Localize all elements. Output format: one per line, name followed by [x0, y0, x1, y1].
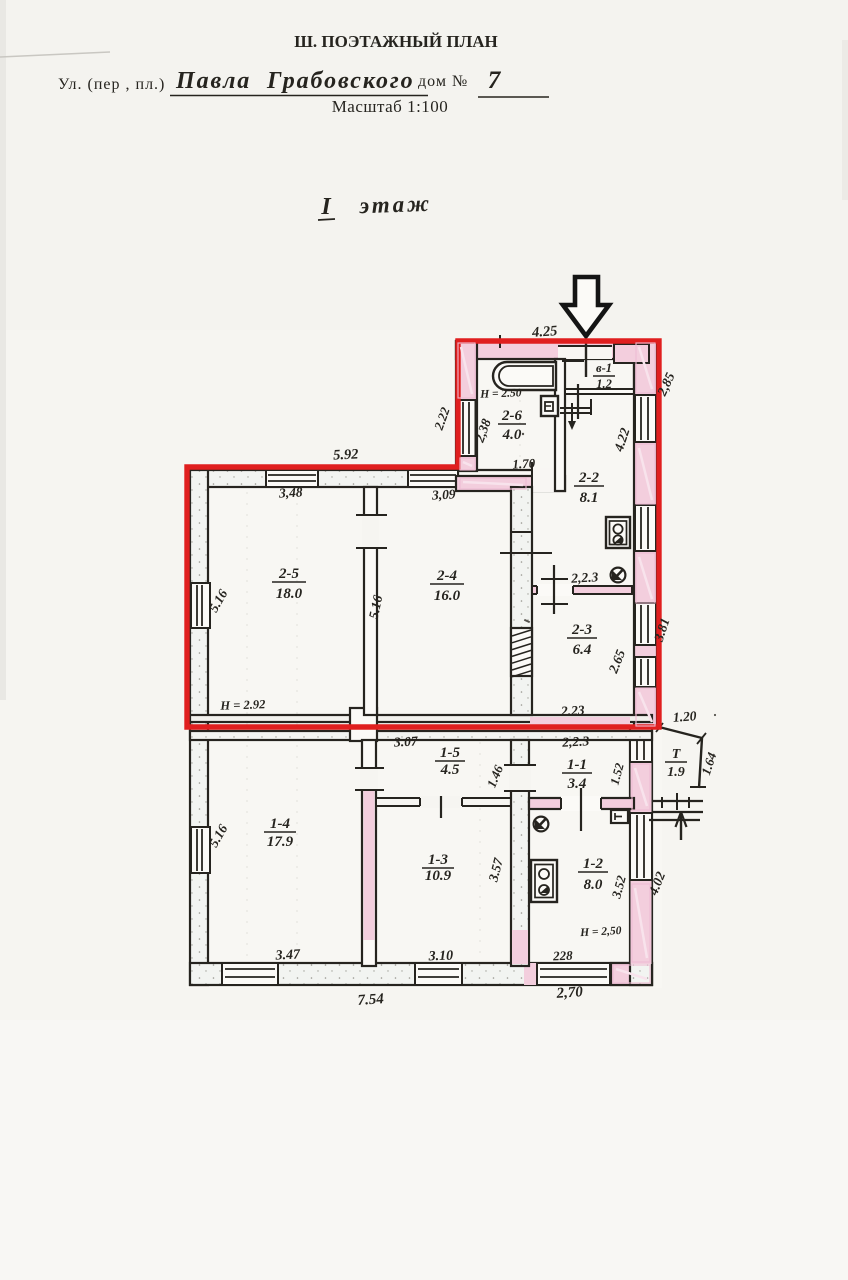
- svg-text:16.0: 16.0: [434, 588, 461, 604]
- svg-text:2-6: 2-6: [501, 408, 522, 424]
- svg-text:228: 228: [552, 948, 574, 964]
- svg-text:10.9: 10.9: [425, 868, 452, 884]
- svg-text:17.9: 17.9: [267, 834, 294, 850]
- svg-text:Т: Т: [672, 747, 682, 762]
- svg-text:1-3: 1-3: [428, 852, 448, 868]
- svg-text:7.54: 7.54: [357, 991, 385, 1009]
- svg-text:1-2: 1-2: [583, 856, 603, 872]
- svg-text:3,48: 3,48: [278, 484, 304, 500]
- svg-text:1-5: 1-5: [440, 745, 460, 761]
- svg-text:Масштаб 1:100: Масштаб 1:100: [332, 97, 449, 116]
- svg-text:2-2: 2-2: [578, 470, 599, 486]
- svg-text:Ш. ПОЭТАЖНЫЙ ПЛАН: Ш. ПОЭТАЖНЫЙ ПЛАН: [294, 32, 498, 51]
- svg-text:Ул. (пер , пл.): Ул. (пер , пл.): [58, 76, 165, 93]
- svg-text:Н = 2.92: Н = 2.92: [219, 697, 265, 713]
- svg-text:2,70: 2,70: [555, 984, 584, 1002]
- svg-text:1.2: 1.2: [596, 377, 612, 391]
- svg-text:3.47: 3.47: [274, 947, 301, 963]
- svg-text:Павла Грабовского: Павла Грабовского: [175, 68, 415, 94]
- svg-text:Н = 2.50: Н = 2.50: [479, 387, 522, 400]
- svg-text:2-5: 2-5: [278, 566, 299, 582]
- svg-text:4.0: 4.0: [502, 427, 522, 443]
- svg-text:этаж: этаж: [358, 191, 432, 219]
- svg-text:18.0: 18.0: [276, 586, 303, 602]
- svg-text:4.5: 4.5: [440, 762, 460, 778]
- svg-text:2.23: 2.23: [560, 702, 586, 718]
- svg-text:2,2.3: 2,2.3: [570, 569, 599, 585]
- svg-text:2-4: 2-4: [436, 568, 457, 584]
- svg-text:1.70: 1.70: [512, 455, 536, 471]
- svg-text:1-4: 1-4: [270, 816, 290, 832]
- svg-text:дом №: дом №: [418, 73, 468, 90]
- svg-text:I: I: [320, 194, 332, 220]
- svg-text:7: 7: [488, 67, 502, 94]
- svg-text:1.20: 1.20: [672, 708, 697, 725]
- svg-text:2,2.3: 2,2.3: [561, 733, 590, 749]
- svg-text:3,09: 3,09: [431, 486, 457, 502]
- svg-text:в-1: в-1: [596, 361, 612, 375]
- svg-text:4.25: 4.25: [531, 323, 558, 341]
- svg-text:8.0: 8.0: [584, 877, 603, 893]
- svg-text:8.1: 8.1: [580, 490, 599, 506]
- svg-text:6.4: 6.4: [573, 642, 592, 658]
- svg-text:3.10: 3.10: [427, 949, 453, 965]
- svg-text:1.9: 1.9: [667, 765, 685, 780]
- svg-text:2-3: 2-3: [571, 622, 592, 638]
- svg-text:3.4: 3.4: [567, 776, 587, 792]
- svg-text:1-1: 1-1: [567, 757, 587, 773]
- svg-text:Н = 2,50: Н = 2,50: [579, 925, 622, 939]
- svg-text:3.07: 3.07: [393, 733, 420, 749]
- svg-text:5.92: 5.92: [333, 446, 359, 463]
